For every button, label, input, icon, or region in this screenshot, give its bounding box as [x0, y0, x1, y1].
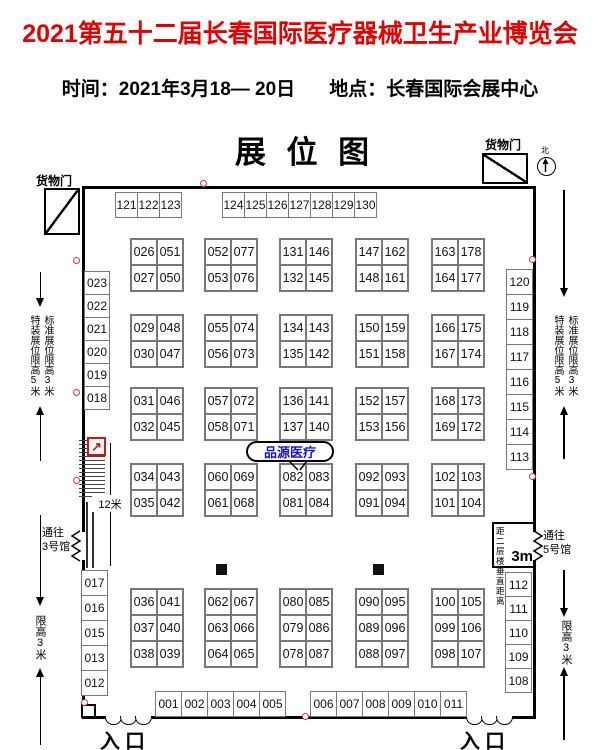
- booth-146: 146: [306, 239, 332, 265]
- passage-hall5-line1: 通往: [543, 529, 571, 543]
- booth-005: 005: [259, 691, 286, 717]
- booth-126: 126: [266, 192, 289, 218]
- booth-123: 123: [159, 192, 182, 218]
- booth-block: 102103101104: [431, 463, 485, 517]
- booth-011: 011: [440, 691, 467, 717]
- booth-035: 035: [131, 490, 157, 516]
- booth-block: 036041037040038039: [130, 588, 184, 668]
- booth-140: 140: [306, 414, 332, 440]
- booth-066: 066: [231, 615, 257, 641]
- booth-block: 168173169172: [431, 387, 485, 441]
- booth-060: 060: [205, 464, 231, 490]
- booth-092: 092: [356, 464, 382, 490]
- booth-167: 167: [432, 341, 458, 367]
- booth-093: 093: [382, 464, 408, 490]
- booth-079: 079: [280, 615, 306, 641]
- booth-078: 078: [280, 641, 306, 667]
- booth-124: 124: [222, 192, 245, 218]
- booth-013: 013: [81, 645, 108, 671]
- booth-101: 101: [432, 490, 458, 516]
- booth-112: 112: [505, 572, 532, 597]
- pillar: [216, 564, 227, 575]
- booth-086: 086: [306, 615, 332, 641]
- booth-block: 082083081084: [279, 463, 333, 517]
- booth-block: 166175167174: [431, 314, 485, 368]
- booth-152: 152: [356, 388, 382, 414]
- booth-102: 102: [432, 464, 458, 490]
- booth-030: 030: [131, 341, 157, 367]
- booth-097: 097: [382, 641, 408, 667]
- booth-131: 131: [280, 239, 306, 265]
- booth-089: 089: [356, 615, 382, 641]
- booth-147: 147: [356, 239, 382, 265]
- wall-right-upper: [533, 186, 536, 532]
- pillar: [373, 564, 384, 575]
- booth-145: 145: [306, 265, 332, 291]
- fire-point-marker: [73, 257, 80, 264]
- wall-bottom-c: [510, 716, 535, 719]
- arrow-up-icon: [40, 415, 42, 461]
- booth-046: 046: [157, 388, 183, 414]
- booth-068: 068: [231, 490, 257, 516]
- booth-017: 017: [81, 570, 108, 596]
- booth-085: 085: [306, 589, 332, 615]
- passage-hall3-line1: 通往: [42, 526, 70, 540]
- booth-100: 100: [432, 589, 458, 615]
- booth-block: 062067063066064065: [204, 588, 258, 668]
- expo-title: 2021第五十二届长春国际医疗器械卫生产业博览会: [0, 14, 600, 50]
- booth-175: 175: [458, 315, 484, 341]
- door-arc-icon: [496, 716, 513, 725]
- booth-119: 119: [506, 294, 533, 320]
- booth-169: 169: [432, 414, 458, 440]
- booth-076: 076: [231, 265, 257, 291]
- cargo-door-left-label: 货物门: [36, 172, 72, 189]
- limit-standard-right: 标准展位限高3米: [565, 315, 578, 396]
- arrow-down-icon: [40, 272, 42, 300]
- arrow-down-icon: [36, 597, 44, 606]
- booth-151: 151: [356, 341, 382, 367]
- booth-019: 019: [84, 363, 110, 387]
- booth-042: 042: [157, 490, 183, 516]
- mezzanine-note-box: 距二层楼垂直距离 3m: [492, 522, 533, 568]
- booth-062: 062: [205, 589, 231, 615]
- booth-065: 065: [231, 641, 257, 667]
- booth-067: 067: [231, 589, 257, 615]
- arrow-up-icon: [563, 415, 565, 459]
- entrance-right-label: 入口: [460, 725, 510, 750]
- passage-hall5-line2: 5号馆: [543, 543, 571, 557]
- booth-006: 006: [310, 691, 337, 717]
- booth-block: 163178164177: [431, 238, 485, 292]
- booth-036: 036: [131, 589, 157, 615]
- booth-block: 055074056073: [204, 314, 258, 368]
- booth-039: 039: [157, 641, 183, 667]
- booth-082: 082: [280, 464, 306, 490]
- booth-block: 150159151158: [355, 314, 409, 368]
- arrow-up-icon: [560, 667, 568, 676]
- booth-074: 074: [231, 315, 257, 341]
- booth-block: 029048030047: [130, 314, 184, 368]
- corner-box: [81, 704, 96, 718]
- booth-037: 037: [131, 615, 157, 641]
- booth-055: 055: [205, 315, 231, 341]
- booth-084: 084: [306, 490, 332, 516]
- plan-heading: 展 位 图: [185, 127, 425, 172]
- booth-134: 134: [280, 315, 306, 341]
- booth-083: 083: [306, 464, 332, 490]
- booth-block: 057072058071: [204, 387, 258, 441]
- passage-hall3-label: 通往 3号馆: [42, 526, 70, 554]
- passage-hall3-line2: 3号馆: [42, 540, 70, 554]
- time-label: 时间：: [62, 79, 119, 100]
- booth-120: 120: [506, 269, 533, 295]
- booth-048: 048: [157, 315, 183, 341]
- booth-069: 069: [231, 464, 257, 490]
- exhibitor-callout-text: 品源医疗: [264, 442, 316, 461]
- booth-162: 162: [382, 239, 408, 265]
- booth-113: 113: [506, 444, 533, 470]
- booth-142: 142: [306, 341, 332, 367]
- booth-094: 094: [382, 490, 408, 516]
- booth-050: 050: [157, 265, 183, 291]
- booth-block: 060069061068: [204, 463, 258, 517]
- booth-063: 063: [205, 615, 231, 641]
- booth-block: 090095089096088097: [355, 588, 409, 668]
- booth-029: 029: [131, 315, 157, 341]
- booth-148: 148: [356, 265, 382, 291]
- booth-058: 058: [205, 414, 231, 440]
- booth-157: 157: [382, 388, 408, 414]
- booth-159: 159: [382, 315, 408, 341]
- fire-point-marker: [529, 473, 536, 480]
- booth-172: 172: [458, 414, 484, 440]
- arrow-down-icon: [560, 288, 568, 297]
- booth-002: 002: [181, 691, 208, 717]
- booth-047: 047: [157, 341, 183, 367]
- booth-020: 020: [84, 340, 110, 364]
- booth-137: 137: [280, 414, 306, 440]
- arrow-down-icon: [563, 190, 565, 290]
- arrow-up-icon: [563, 676, 565, 740]
- booth-136: 136: [280, 388, 306, 414]
- booth-012: 012: [81, 670, 108, 696]
- arrow-down-icon: [36, 298, 44, 307]
- booth-122: 122: [137, 192, 160, 218]
- booth-027: 027: [131, 265, 157, 291]
- booth-block: 131146132145: [279, 238, 333, 292]
- fire-point-marker: [200, 180, 207, 187]
- fire-point-marker: [73, 389, 80, 396]
- booth-043: 043: [157, 464, 183, 490]
- stair-length-label: 12米: [92, 496, 128, 512]
- booth-114: 114: [506, 419, 533, 445]
- arrow-down-icon: [40, 515, 42, 599]
- booth-111: 111: [505, 596, 532, 621]
- booth-072: 072: [231, 388, 257, 414]
- booth-block: 152157153156: [355, 387, 409, 441]
- booth-095: 095: [382, 589, 408, 615]
- booth-163: 163: [432, 239, 458, 265]
- booth-block: 092093091094: [355, 463, 409, 517]
- booth-064: 064: [205, 641, 231, 667]
- booth-173: 173: [458, 388, 484, 414]
- arrow-up-icon: [560, 406, 568, 415]
- mezzanine-note-text: 距二层楼垂直距离: [494, 524, 511, 566]
- booth-023: 023: [84, 271, 110, 295]
- booth-block: 031046032045: [130, 387, 184, 441]
- door-arc-icon: [135, 716, 152, 725]
- booth-block: 147162148161: [355, 238, 409, 292]
- booth-008: 008: [362, 691, 389, 717]
- fire-point-marker: [73, 477, 80, 484]
- booth-096: 096: [382, 615, 408, 641]
- arrow-up-icon: [36, 668, 44, 677]
- booth-168: 168: [432, 388, 458, 414]
- booth-156: 156: [382, 414, 408, 440]
- booth-004: 004: [233, 691, 260, 717]
- arrow-up-icon: [40, 677, 42, 745]
- booth-117: 117: [506, 344, 533, 370]
- booth-block: 052077053076: [204, 238, 258, 292]
- booth-141: 141: [306, 388, 332, 414]
- booth-178: 178: [458, 239, 484, 265]
- limit-special-right: 特装展位限高5米: [551, 315, 564, 396]
- booth-block: 100105099106098107: [431, 588, 485, 668]
- booth-130: 130: [354, 192, 377, 218]
- booth-158: 158: [382, 341, 408, 367]
- booth-038: 038: [131, 641, 157, 667]
- place-value: 长春国际会展中心: [386, 79, 538, 100]
- booth-116: 116: [506, 369, 533, 395]
- fire-point-marker: [302, 713, 309, 720]
- booth-125: 125: [244, 192, 267, 218]
- booth-077: 077: [231, 239, 257, 265]
- booth-128: 128: [310, 192, 333, 218]
- booth-103: 103: [458, 464, 484, 490]
- mezzanine-note-value: 3m: [511, 548, 533, 566]
- booth-block: 134143135142: [279, 314, 333, 368]
- booth-051: 051: [157, 239, 183, 265]
- booth-107: 107: [458, 641, 484, 667]
- booth-041: 041: [157, 589, 183, 615]
- booth-032: 032: [131, 414, 157, 440]
- booth-109: 109: [505, 644, 532, 669]
- booth-161: 161: [382, 265, 408, 291]
- booth-164: 164: [432, 265, 458, 291]
- booth-104: 104: [458, 490, 484, 516]
- booth-081: 081: [280, 490, 306, 516]
- passage-hall5-label: 通往 5号馆: [543, 529, 571, 557]
- booth-073: 073: [231, 341, 257, 367]
- booth-132: 132: [280, 265, 306, 291]
- booth-106: 106: [458, 615, 484, 641]
- booth-045: 045: [157, 414, 183, 440]
- height-limit-right: 限高3米: [559, 620, 572, 665]
- accordion-door-icon: [534, 531, 542, 561]
- booth-010: 010: [414, 691, 441, 717]
- booth-088: 088: [356, 641, 382, 667]
- booth-118: 118: [506, 319, 533, 345]
- booth-091: 091: [356, 490, 382, 516]
- booth-174: 174: [458, 341, 484, 367]
- booth-099: 099: [432, 615, 458, 641]
- dimension-line: [110, 512, 111, 566]
- compass-icon: [537, 157, 556, 176]
- booth-052: 052: [205, 239, 231, 265]
- booth-090: 090: [356, 589, 382, 615]
- booth-056: 056: [205, 341, 231, 367]
- dimension-line: [110, 443, 111, 495]
- booth-001: 001: [155, 691, 182, 717]
- place-label: 地点：: [329, 79, 386, 100]
- booth-009: 009: [388, 691, 415, 717]
- north-label: 北: [541, 145, 549, 156]
- booth-018: 018: [84, 386, 110, 410]
- booth-153: 153: [356, 414, 382, 440]
- time-value: 2021年3月18— 20日: [119, 79, 295, 100]
- booth-031: 031: [131, 388, 157, 414]
- booth-087: 087: [306, 641, 332, 667]
- booth-135: 135: [280, 341, 306, 367]
- cargo-door-left-icon: [44, 188, 80, 235]
- entrance-left-label: 入口: [100, 725, 150, 750]
- fire-point-marker: [81, 699, 88, 706]
- booth-127: 127: [288, 192, 311, 218]
- booth-071: 071: [231, 414, 257, 440]
- booth-166: 166: [432, 315, 458, 341]
- booth-150: 150: [356, 315, 382, 341]
- exhibitor-callout: 品源医疗: [246, 441, 334, 462]
- booth-016: 016: [81, 595, 108, 621]
- booth-143: 143: [306, 315, 332, 341]
- expo-subtitle: 时间：2021年3月18— 20日地点：长春国际会展中心: [0, 74, 600, 101]
- booth-108: 108: [505, 668, 532, 693]
- booth-080: 080: [280, 589, 306, 615]
- booth-007: 007: [336, 691, 363, 717]
- arrow-down-icon: [563, 570, 565, 610]
- booth-177: 177: [458, 265, 484, 291]
- booth-015: 015: [81, 620, 108, 646]
- limit-special-left: 特装展位限高5米: [27, 315, 40, 396]
- height-limit-left: 限高3米: [33, 615, 46, 660]
- cargo-door-right-label: 货物门: [485, 136, 521, 153]
- booth-115: 115: [506, 394, 533, 420]
- booth-053: 053: [205, 265, 231, 291]
- wall-top: [82, 186, 535, 189]
- booth-057: 057: [205, 388, 231, 414]
- accordion-door-icon: [72, 531, 80, 561]
- cargo-door-right-icon: [482, 153, 528, 184]
- booth-034: 034: [131, 464, 157, 490]
- limit-standard-left: 标准展位限高3米: [41, 315, 54, 396]
- booth-block: 034043035042: [130, 463, 184, 517]
- arrow-down-icon: [560, 608, 568, 617]
- expo-floorplan-page: 2021第五十二届长春国际医疗器械卫生产业博览会 时间：2021年3月18— 2…: [0, 0, 600, 750]
- booth-105: 105: [458, 589, 484, 615]
- booth-block: 136141137140: [279, 387, 333, 441]
- booth-061: 061: [205, 490, 231, 516]
- booth-block: 026051027050: [130, 238, 184, 292]
- stair-rail: [86, 502, 88, 568]
- booth-026: 026: [131, 239, 157, 265]
- booth-110: 110: [505, 620, 532, 645]
- escalator-icon: ↗: [87, 437, 106, 456]
- booth-003: 003: [207, 691, 234, 717]
- wall-right-lower: [533, 560, 536, 719]
- booth-021: 021: [84, 317, 110, 341]
- booth-129: 129: [332, 192, 355, 218]
- arrow-up-icon: [36, 406, 44, 415]
- fire-point-marker: [529, 256, 536, 263]
- booth-121: 121: [115, 192, 138, 218]
- booth-098: 098: [432, 641, 458, 667]
- booth-022: 022: [84, 294, 110, 318]
- booth-040: 040: [157, 615, 183, 641]
- booth-block: 080085079086078087: [279, 588, 333, 668]
